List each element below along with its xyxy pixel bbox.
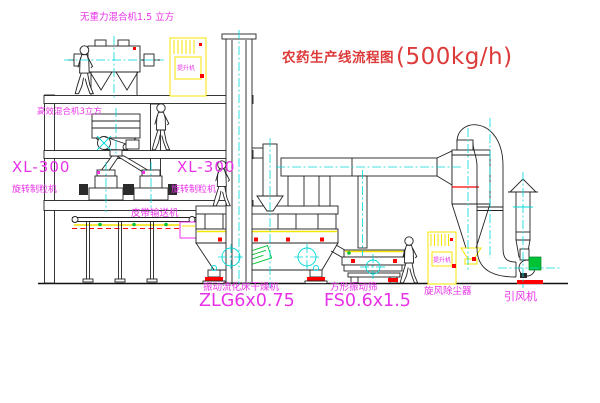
tag-elevator-top: 提升机 — [177, 66, 195, 72]
label-granulator-right-model: XL-300 — [177, 160, 235, 175]
title-text: 农药生产线流程图 — [282, 46, 394, 70]
label-dryer-model: ZLG6x0.75 — [199, 293, 295, 311]
fluid-bed-dryer — [196, 206, 338, 284]
granulator-right — [126, 170, 177, 200]
feed-pipe-funnel — [252, 144, 283, 211]
label-high-eff-mixer: 高效混合机3立方 — [37, 108, 102, 117]
title-capacity: (500kg/h) — [396, 44, 513, 70]
cyclone-separator — [452, 140, 490, 264]
label-granulator-left-model: XL-300 — [12, 160, 70, 175]
tag-elevator-right: 提升机 — [433, 258, 451, 264]
label-granulator-right-name: 旋转制粒机 — [171, 186, 216, 195]
label-granulator-left-name: 旋转制粒机 — [12, 186, 57, 195]
label-cyclone: 旋风除尘器 — [424, 287, 472, 297]
label-sieve-model: FS0.6x1.5 — [324, 293, 411, 311]
label-belt-conveyor: 皮带输送机 — [131, 209, 179, 219]
induced-draft-fan — [517, 249, 543, 284]
page-title: 农药生产线流程图 (500kg/h) — [282, 44, 513, 70]
belt-conveyor — [72, 217, 197, 283]
label-gravity-mixer: 无重力混合机1.5 立方 — [80, 13, 174, 23]
label-fan: 引风机 — [504, 291, 537, 302]
vibrating-sieve — [331, 245, 406, 283]
diagram-canvas: 无重力混合机1.5 立方 农药生产线流程图 (500kg/h) 高效混合机3立方… — [0, 0, 600, 403]
granulator-left — [79, 170, 131, 200]
